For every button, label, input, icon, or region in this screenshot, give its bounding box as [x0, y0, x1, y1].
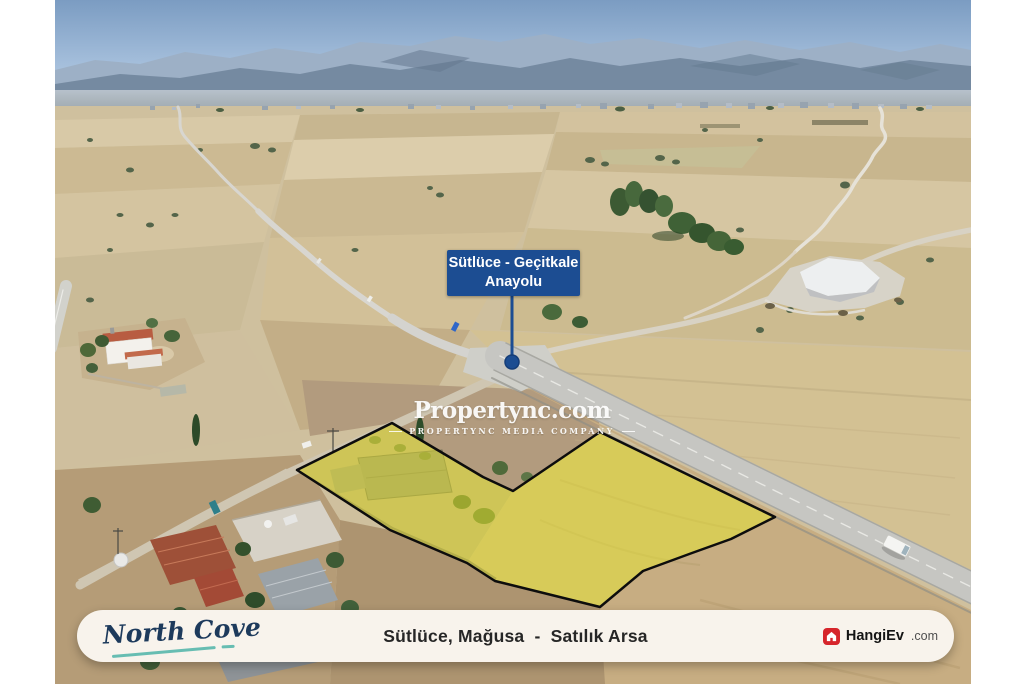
label-marker-dot [505, 355, 519, 369]
house-icon-glyph [826, 631, 837, 642]
field-patchwork [55, 106, 971, 684]
road-label: Sütlüce - Geçitkale Anayolu [447, 250, 580, 296]
footer-bar: North Cove Sütlüce, Mağusa - Satılık Ars… [77, 610, 954, 662]
road-label-line1: Sütlüce - Geçitkale [449, 254, 579, 273]
aerial-photo-scene [55, 0, 971, 684]
cypress-tree [192, 414, 200, 446]
house-icon [823, 628, 840, 645]
portal-tld: .com [911, 629, 938, 643]
aerial-photo [55, 0, 971, 684]
portal-name: HangiEv [846, 628, 904, 644]
portal-logo: HangiEv .com [823, 610, 938, 662]
road-label-line2: Anayolu [485, 273, 542, 292]
listing-image: { "annotations": { "road_label": { "line… [0, 0, 1024, 684]
water-tank [114, 553, 128, 567]
